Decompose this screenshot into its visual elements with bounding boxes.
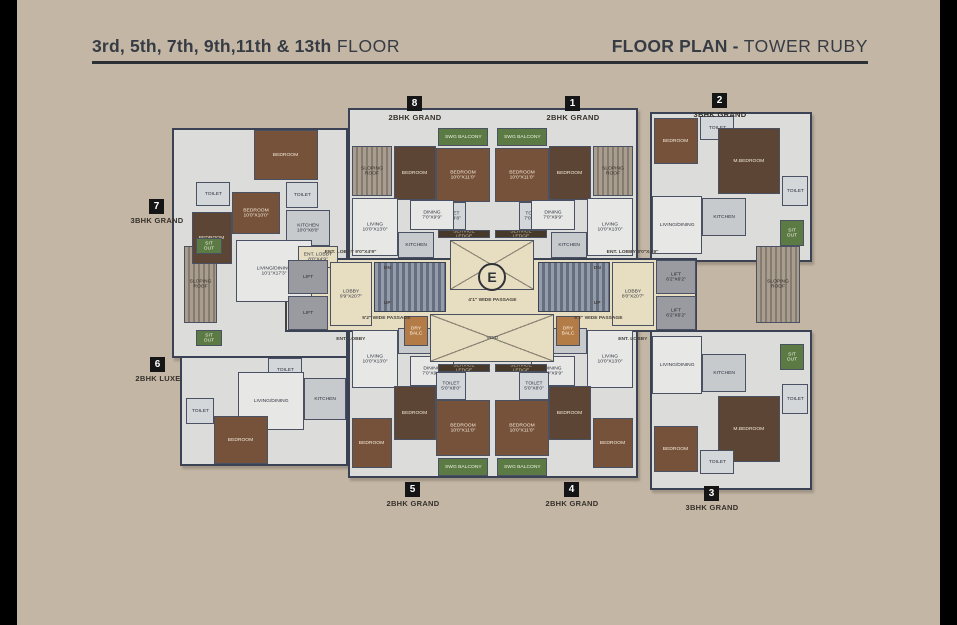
u1-swg-balcony: SWG BALCONY (497, 128, 547, 146)
unit-badge-6: 6 (150, 357, 165, 372)
u2-bedroom-1: BEDROOM (654, 118, 698, 164)
unit-badge-3: 3 (704, 486, 719, 501)
unit-badge-1: 1 (565, 96, 580, 111)
u1-kitchen: KITCHEN (551, 232, 587, 258)
u6-kitchen: KITCHEN (304, 378, 346, 420)
u2-toilet-2: TOILET (782, 176, 808, 206)
unit-badge-2: 2 (712, 93, 727, 108)
floor-plan-page: 3rd, 5th, 7th, 9th,11th & 13th FLOOR FLO… (0, 0, 957, 625)
u8-bedroom-1: BEDROOM 10'0"X11'0" (436, 148, 490, 202)
service-ledge-top-left: SERVICE LEDGE (438, 230, 490, 238)
unit-type-2: 3BHK GRAND (678, 110, 762, 119)
u2-living: LIVING/DINING (652, 196, 702, 254)
unit-type-8: 2BHK GRAND (373, 113, 457, 122)
passage-41-label: 4'1" WIDE PASSAGE (447, 295, 537, 306)
u5-swg-balcony: SWG BALCONY (438, 458, 488, 476)
elevator-symbol: E (478, 263, 506, 291)
sloping-roof-right: SLOPING ROOF (756, 246, 800, 323)
unit-badge-5: 5 (405, 482, 420, 497)
u5-bedroom-1: BEDROOM 10'0"X11'0" (436, 400, 490, 456)
void-xbrace: VOID (430, 314, 554, 362)
u2-kitchen: KITCHEN (702, 198, 746, 236)
stairs-right-dn-label: DN (588, 264, 606, 273)
u8-sloping-roof: SLOPING ROOF (352, 146, 392, 196)
u3-toilet-2: TOILET (782, 384, 808, 414)
ent-lobby-bottom-left-label: ENT. LOBBY (328, 334, 374, 345)
u4-bedroom-3: BEDROOM (593, 418, 633, 468)
floor-plan: SLOPING ROOFSLOPING ROOFBEDROOMTOILETBED… (0, 0, 957, 625)
u3-kitchen: KITCHEN (702, 354, 746, 392)
u3-toilet-1: TOILET (700, 450, 734, 474)
stairs-right-up-label: UP (588, 299, 606, 308)
unit-badge-8: 8 (407, 96, 422, 111)
service-ledge-bottom-left: SERVICE LEDGE (438, 364, 490, 372)
u3-bedroom-1: BEDROOM (654, 426, 698, 472)
u8-dining: DINING 7'0"X9'9" (410, 200, 454, 230)
unit-type-1: 2BHK GRAND (531, 113, 615, 122)
u7-bedroom-1: BEDROOM (254, 130, 318, 180)
u5-toilet: TOILET 5'0"X8'0" (436, 372, 466, 400)
u1-dining: DINING 7'0"X9'9" (531, 200, 575, 230)
passage-52-right-label: 5'2" WIDE PASSAGE (558, 313, 638, 324)
u7-sitout-1: SIT OUT (196, 238, 222, 254)
ent-lobby-bottom-right-label: ENT. LOBBY (610, 334, 656, 345)
ent-lobby-top-right-label: ENT. LOBBY 8'0"X4'9" (604, 247, 662, 258)
u7-sitout-2: SIT OUT (196, 330, 222, 346)
u7-bedroom-2: BEDROOM 10'0"X10'0" (232, 192, 280, 234)
u4-toilet: TOILET 5'0"X8'0" (519, 372, 549, 400)
u7-toilet-2: TOILET (286, 182, 318, 208)
unit-type-6: 2BHK LUXE (116, 374, 200, 383)
unit-type-5: 2BHK GRAND (371, 499, 455, 508)
u8-swg-balcony: SWG BALCONY (438, 128, 488, 146)
u5-bedroom-3: BEDROOM (352, 418, 392, 468)
unit-badge-4: 4 (564, 482, 579, 497)
u1-sloping-roof: SLOPING ROOF (593, 146, 633, 196)
u6-bedroom: BEDROOM (214, 416, 268, 464)
u1-bedroom-1: BEDROOM 10'0"X11'0" (495, 148, 549, 202)
u8-bedroom-2: BEDROOM (394, 146, 436, 200)
service-ledge-bottom-right: SERVICE LEDGE (495, 364, 547, 372)
u3-living: LIVING/DINING (652, 336, 702, 394)
unit-type-3: 3BHK GRAND (670, 503, 754, 512)
u6-toilet-2: TOILET (186, 398, 214, 424)
lift-left-2: LIFT (288, 296, 328, 330)
u5-bedroom-2: BEDROOM (394, 386, 436, 440)
u3-sitout: SIT OUT (780, 344, 804, 370)
stairs-left-up-label: UP (378, 299, 396, 308)
u2-sitout: SIT OUT (780, 220, 804, 246)
u4-bedroom-1: BEDROOM 10'0"X11'0" (495, 400, 549, 456)
passage-52-left-label: 5'2" WIDE PASSAGE (346, 313, 426, 324)
lift-left-1: LIFT (288, 260, 328, 294)
u4-bedroom-2: BEDROOM (549, 386, 591, 440)
u8-kitchen: KITCHEN (398, 232, 434, 258)
ent-lobby-top-left-label: ENT. LOBBY 9'0"X4'9" (322, 247, 380, 258)
unit-type-4: 2BHK GRAND (530, 499, 614, 508)
u7-toilet-1: TOILET (196, 182, 230, 206)
lift-right-2: LIFT 6'2"X6'2" (656, 296, 696, 330)
service-ledge-top-right: SERVICE LEDGE (495, 230, 547, 238)
unit-badge-7: 7 (149, 199, 164, 214)
stairs-left-dn-label: DN (378, 264, 396, 273)
u1-bedroom-2: BEDROOM (549, 146, 591, 200)
lift-right-1: LIFT 6'2"X6'2" (656, 260, 696, 294)
unit-type-7: 3BHK GRAND (115, 216, 199, 225)
u4-swg-balcony: SWG BALCONY (497, 458, 547, 476)
u2-mbedroom: M.BEDROOM (718, 128, 780, 194)
